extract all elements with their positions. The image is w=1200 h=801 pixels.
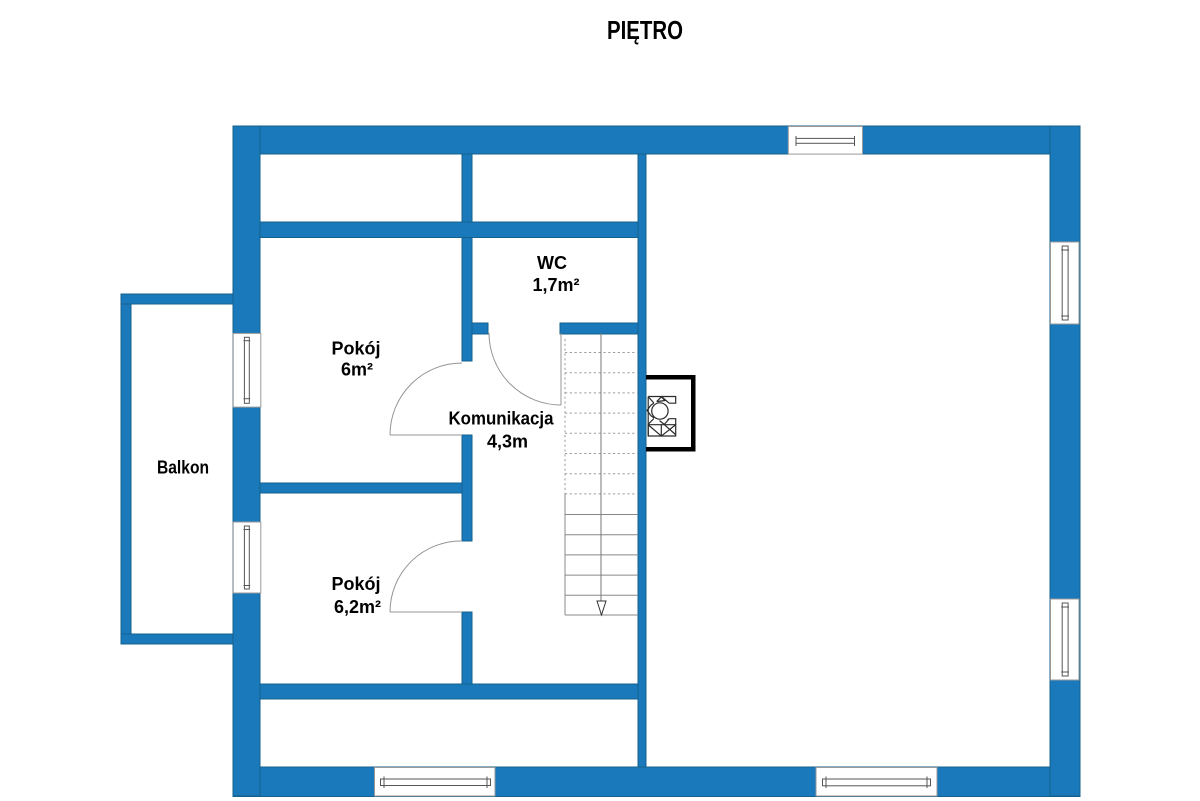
svg-text:Komunikacja: Komunikacja [449,409,555,429]
svg-text:PIĘTRO: PIĘTRO [607,17,683,45]
svg-text:Pokój: Pokój [331,574,380,594]
svg-text:4,3m: 4,3m [487,432,528,452]
svg-text:WC: WC [537,253,567,273]
svg-text:Pokój: Pokój [331,339,380,359]
svg-text:6m²: 6m² [341,360,373,380]
svg-text:Balkon: Balkon [157,458,209,478]
svg-text:1,7m²: 1,7m² [532,275,579,295]
svg-text:6,2m²: 6,2m² [334,597,381,617]
